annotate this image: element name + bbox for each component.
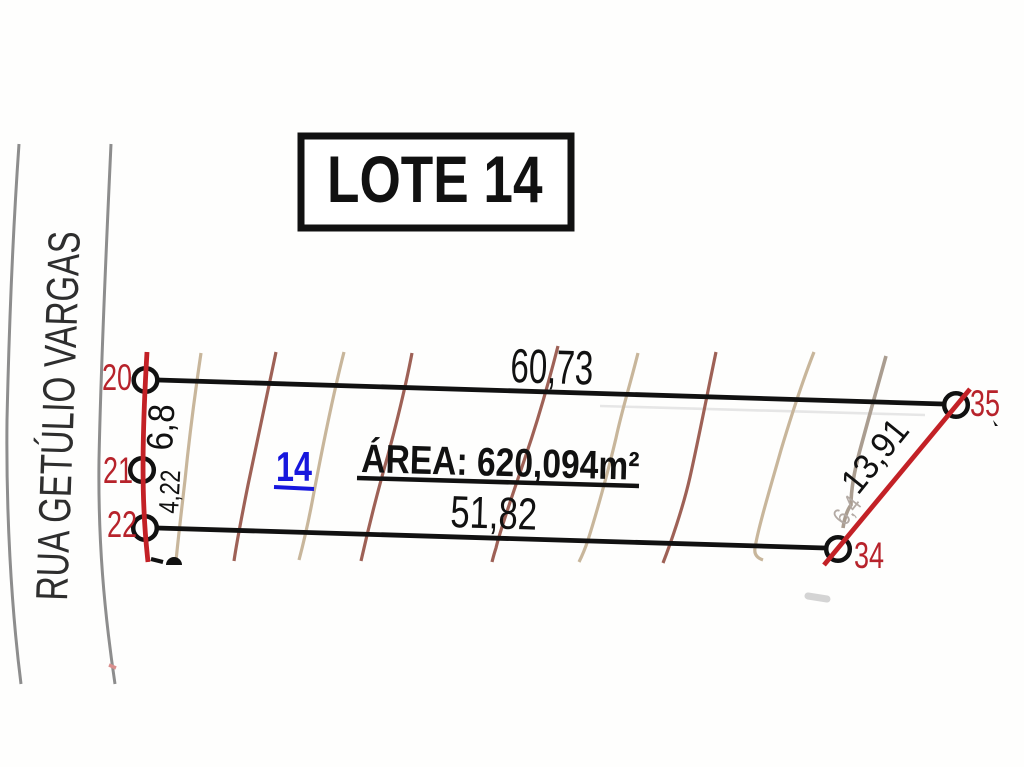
svg-text:51,82: 51,82 (450, 487, 538, 540)
svg-text:34: 34 (854, 535, 884, 576)
svg-text:21: 21 (103, 450, 133, 491)
svg-text:LOTE 14: LOTE 14 (327, 143, 543, 217)
svg-text:14: 14 (276, 443, 312, 490)
svg-text:4,22: 4,22 (154, 469, 187, 514)
svg-text:6,8: 6,8 (139, 403, 182, 451)
svg-text:35: 35 (970, 383, 1000, 424)
svg-text:22: 22 (107, 504, 137, 545)
svg-text:20: 20 (102, 357, 132, 398)
svg-text:60,73: 60,73 (510, 339, 594, 395)
